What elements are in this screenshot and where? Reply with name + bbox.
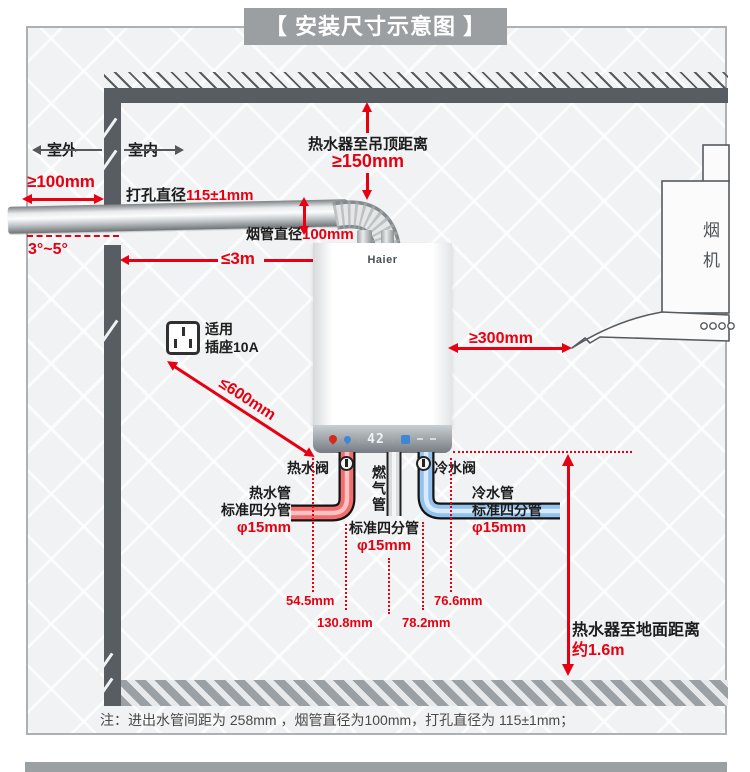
spacing-value: 130.8mm <box>317 615 373 630</box>
gas-pipe-standard: 标准四分管 <box>334 520 434 537</box>
floor-hatch <box>121 680 728 706</box>
ref-line <box>312 458 314 592</box>
next-section-bar <box>25 762 727 772</box>
heater-bottom-ref-line <box>453 451 632 453</box>
arrowhead <box>562 454 574 466</box>
gas-pipe-labels: 标准四分管 φ15mm <box>334 520 434 554</box>
floor-distance-value: 约1.6m <box>572 636 624 660</box>
footnote: 注：进出水管间距为 258mm ，烟管直径为100mm，打孔直径为 115±1m… <box>100 710 574 730</box>
floor-distance-arrow <box>567 461 570 667</box>
ref-line <box>450 458 452 592</box>
installation-diagram: 【 安装尺寸示意图 】 室外 室内 ≥100mm 打孔直径115±1mm 3°~… <box>0 0 750 772</box>
cold-pipe-standard: 标准四分管 <box>472 502 542 519</box>
cold-valve-icon <box>416 456 431 471</box>
ref-line <box>388 558 390 614</box>
hot-pipe-name: 热水管 <box>206 485 291 502</box>
ref-line <box>422 522 424 610</box>
arrowhead <box>562 664 574 676</box>
hot-pipe-labels: 热水管 标准四分管 φ15mm <box>206 485 291 536</box>
hot-pipe-standard: 标准四分管 <box>206 502 291 519</box>
hot-valve-icon <box>339 456 354 471</box>
hot-pipe-size: φ15mm <box>206 519 291 536</box>
spacing-value: 78.2mm <box>402 615 450 630</box>
ref-line <box>345 524 347 610</box>
hot-valve-label: 热水阀 <box>287 458 329 478</box>
cold-pipe-name: 冷水管 <box>472 485 542 502</box>
cold-pipe-labels: 冷水管 标准四分管 φ15mm <box>472 485 542 536</box>
cold-valve-label: 冷水阀 <box>434 458 476 478</box>
gas-pipe-size: φ15mm <box>334 537 434 554</box>
gas-pipe-label: 燃气管 <box>369 465 389 513</box>
spacing-value: 54.5mm <box>286 593 334 608</box>
cold-pipe-size: φ15mm <box>472 519 542 536</box>
spacing-value: 76.6mm <box>434 593 482 608</box>
